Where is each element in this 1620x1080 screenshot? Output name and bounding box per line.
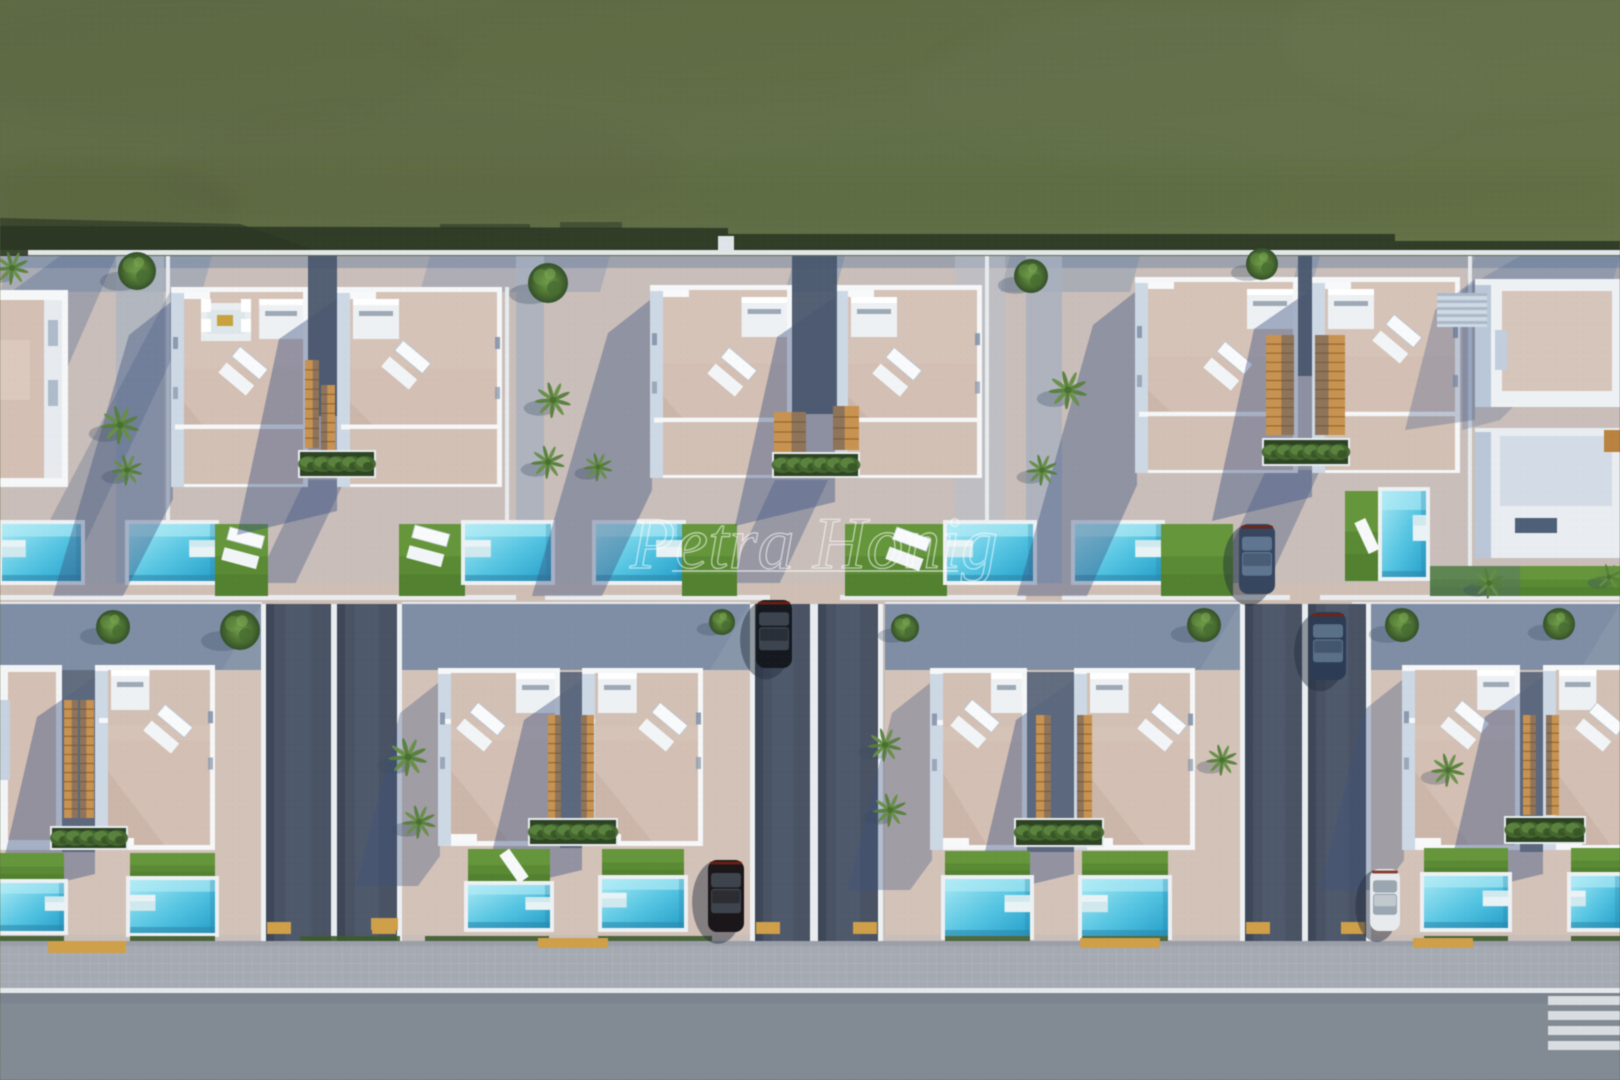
svg-text:Petra Honig: Petra Honig xyxy=(629,503,998,585)
